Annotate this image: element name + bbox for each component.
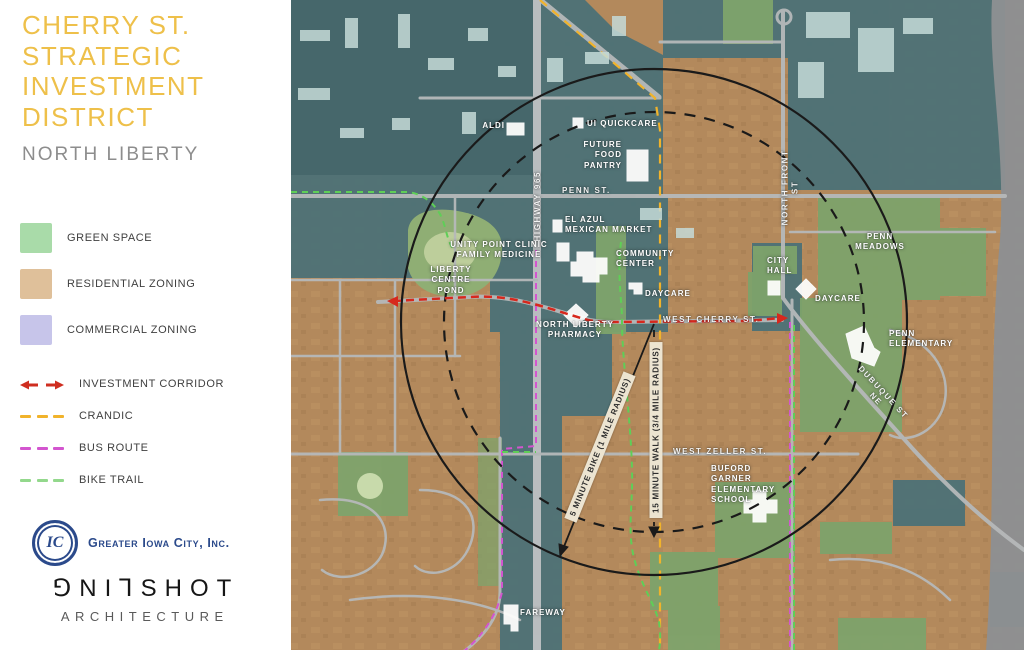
label-city-hall: CITY HALL <box>767 256 792 277</box>
el-azul-building <box>553 220 562 232</box>
label-unity-point: UNITY POINT CLINIC FAMILY MEDICINE <box>441 240 557 261</box>
label-el-azul: EL AZUL MEXICAN MARKET <box>565 215 652 236</box>
page-subtitle: NORTH LIBERTY <box>22 144 199 166</box>
commercial-zoning-swatch <box>20 315 52 345</box>
legend-label: COMMERCIAL ZONING <box>67 324 197 336</box>
page: CHERRY ST. STRATEGIC INVESTMENT DISTRICT… <box>0 0 1024 657</box>
slingshot-subtitle: ARCHITECTURE <box>28 609 256 624</box>
label-penn-elementary: PENN ELEMENTARY <box>889 329 953 350</box>
city-hall-building <box>768 281 780 295</box>
sidebar: CHERRY ST. STRATEGIC INVESTMENT DISTRICT… <box>0 0 291 657</box>
label-community-center: COMMUNITY CENTER <box>616 249 674 270</box>
legend-item-investment-corridor: INVESTMENT CORRIDOR <box>20 378 280 390</box>
annotation-walk-radius: 15 MINUTE WALK (3/4 MILE RADIUS) <box>650 342 663 518</box>
label-west-cherry-st: WEST CHERRY ST. <box>663 315 759 325</box>
label-fareway: FAREWAY <box>520 608 566 618</box>
label-liberty-centre-pond: LIBERTY CENTRE POND <box>420 265 482 296</box>
legend-label: GREEN SPACE <box>67 232 152 244</box>
label-future-food-pantry: FUTURE FOOD PANTRY <box>574 140 622 171</box>
slingshot-wordmark: ⅁NI⅂SHOT <box>28 574 256 603</box>
food-pantry-building <box>627 150 648 181</box>
label-west-zeller-st: WEST ZELLER ST. <box>673 447 767 457</box>
legend-label: CRANDIC <box>79 410 133 422</box>
legend-item-crandic: CRANDIC <box>20 410 280 422</box>
legend-label: RESIDENTIAL ZONING <box>67 278 195 290</box>
slingshot-architecture-logo: ⅁NI⅂SHOT ARCHITECTURE <box>28 574 256 624</box>
label-penn-st: PENN ST. <box>562 186 611 196</box>
label-penn-meadows: PENN MEADOWS <box>844 232 916 253</box>
gic-monogram-icon: IC <box>32 520 78 566</box>
legend-label: BUS ROUTE <box>79 442 149 454</box>
unity-point-building <box>557 243 569 261</box>
aldi-building <box>507 123 524 135</box>
gic-logo-text: Greater Iowa City, Inc. <box>88 536 230 550</box>
page-title: CHERRY ST. STRATEGIC INVESTMENT DISTRICT <box>22 10 205 133</box>
label-daycare-east: DAYCARE <box>815 294 861 304</box>
residential-zoning-swatch <box>20 269 52 299</box>
dashed-line-icon <box>20 447 64 450</box>
legend-spacer <box>20 360 280 378</box>
greater-iowa-city-logo: IC Greater Iowa City, Inc. <box>32 520 230 566</box>
legend-item-commercial-zoning: COMMERCIAL ZONING <box>20 314 280 346</box>
map-graphic <box>291 0 1024 650</box>
legend-label: INVESTMENT CORRIDOR <box>79 378 224 390</box>
double-arrow-icon <box>20 378 64 390</box>
legend-item-residential-zoning: RESIDENTIAL ZONING <box>20 268 280 300</box>
legend-item-bus-route: BUS ROUTE <box>20 442 280 454</box>
legend-item-bike-trail: BIKE TRAIL <box>20 474 280 486</box>
green-space-swatch <box>20 223 52 253</box>
dashed-line-icon <box>20 415 64 418</box>
label-aldi: ALDI <box>463 121 505 131</box>
ball-diamond <box>357 473 383 499</box>
dashed-line-icon <box>20 479 64 482</box>
legend: GREEN SPACE RESIDENTIAL ZONING COMMERCIA… <box>20 222 280 506</box>
label-daycare-west: DAYCARE <box>645 289 691 299</box>
map-canvas <box>291 0 1024 650</box>
legend-item-green-space: GREEN SPACE <box>20 222 280 254</box>
label-north-front-st: NORTH FRONT ST <box>781 143 802 231</box>
label-buford-garner: BUFORD GARNER ELEMENTARY SCHOOL <box>711 464 775 506</box>
label-highway-965: HIGHWAY 965 <box>533 166 543 246</box>
legend-label: BIKE TRAIL <box>79 474 144 486</box>
label-ui-quickcare: UI QUICKCARE <box>587 119 658 129</box>
label-north-liberty-pharmacy: NORTH LIBERTY PHARMACY <box>529 320 621 341</box>
